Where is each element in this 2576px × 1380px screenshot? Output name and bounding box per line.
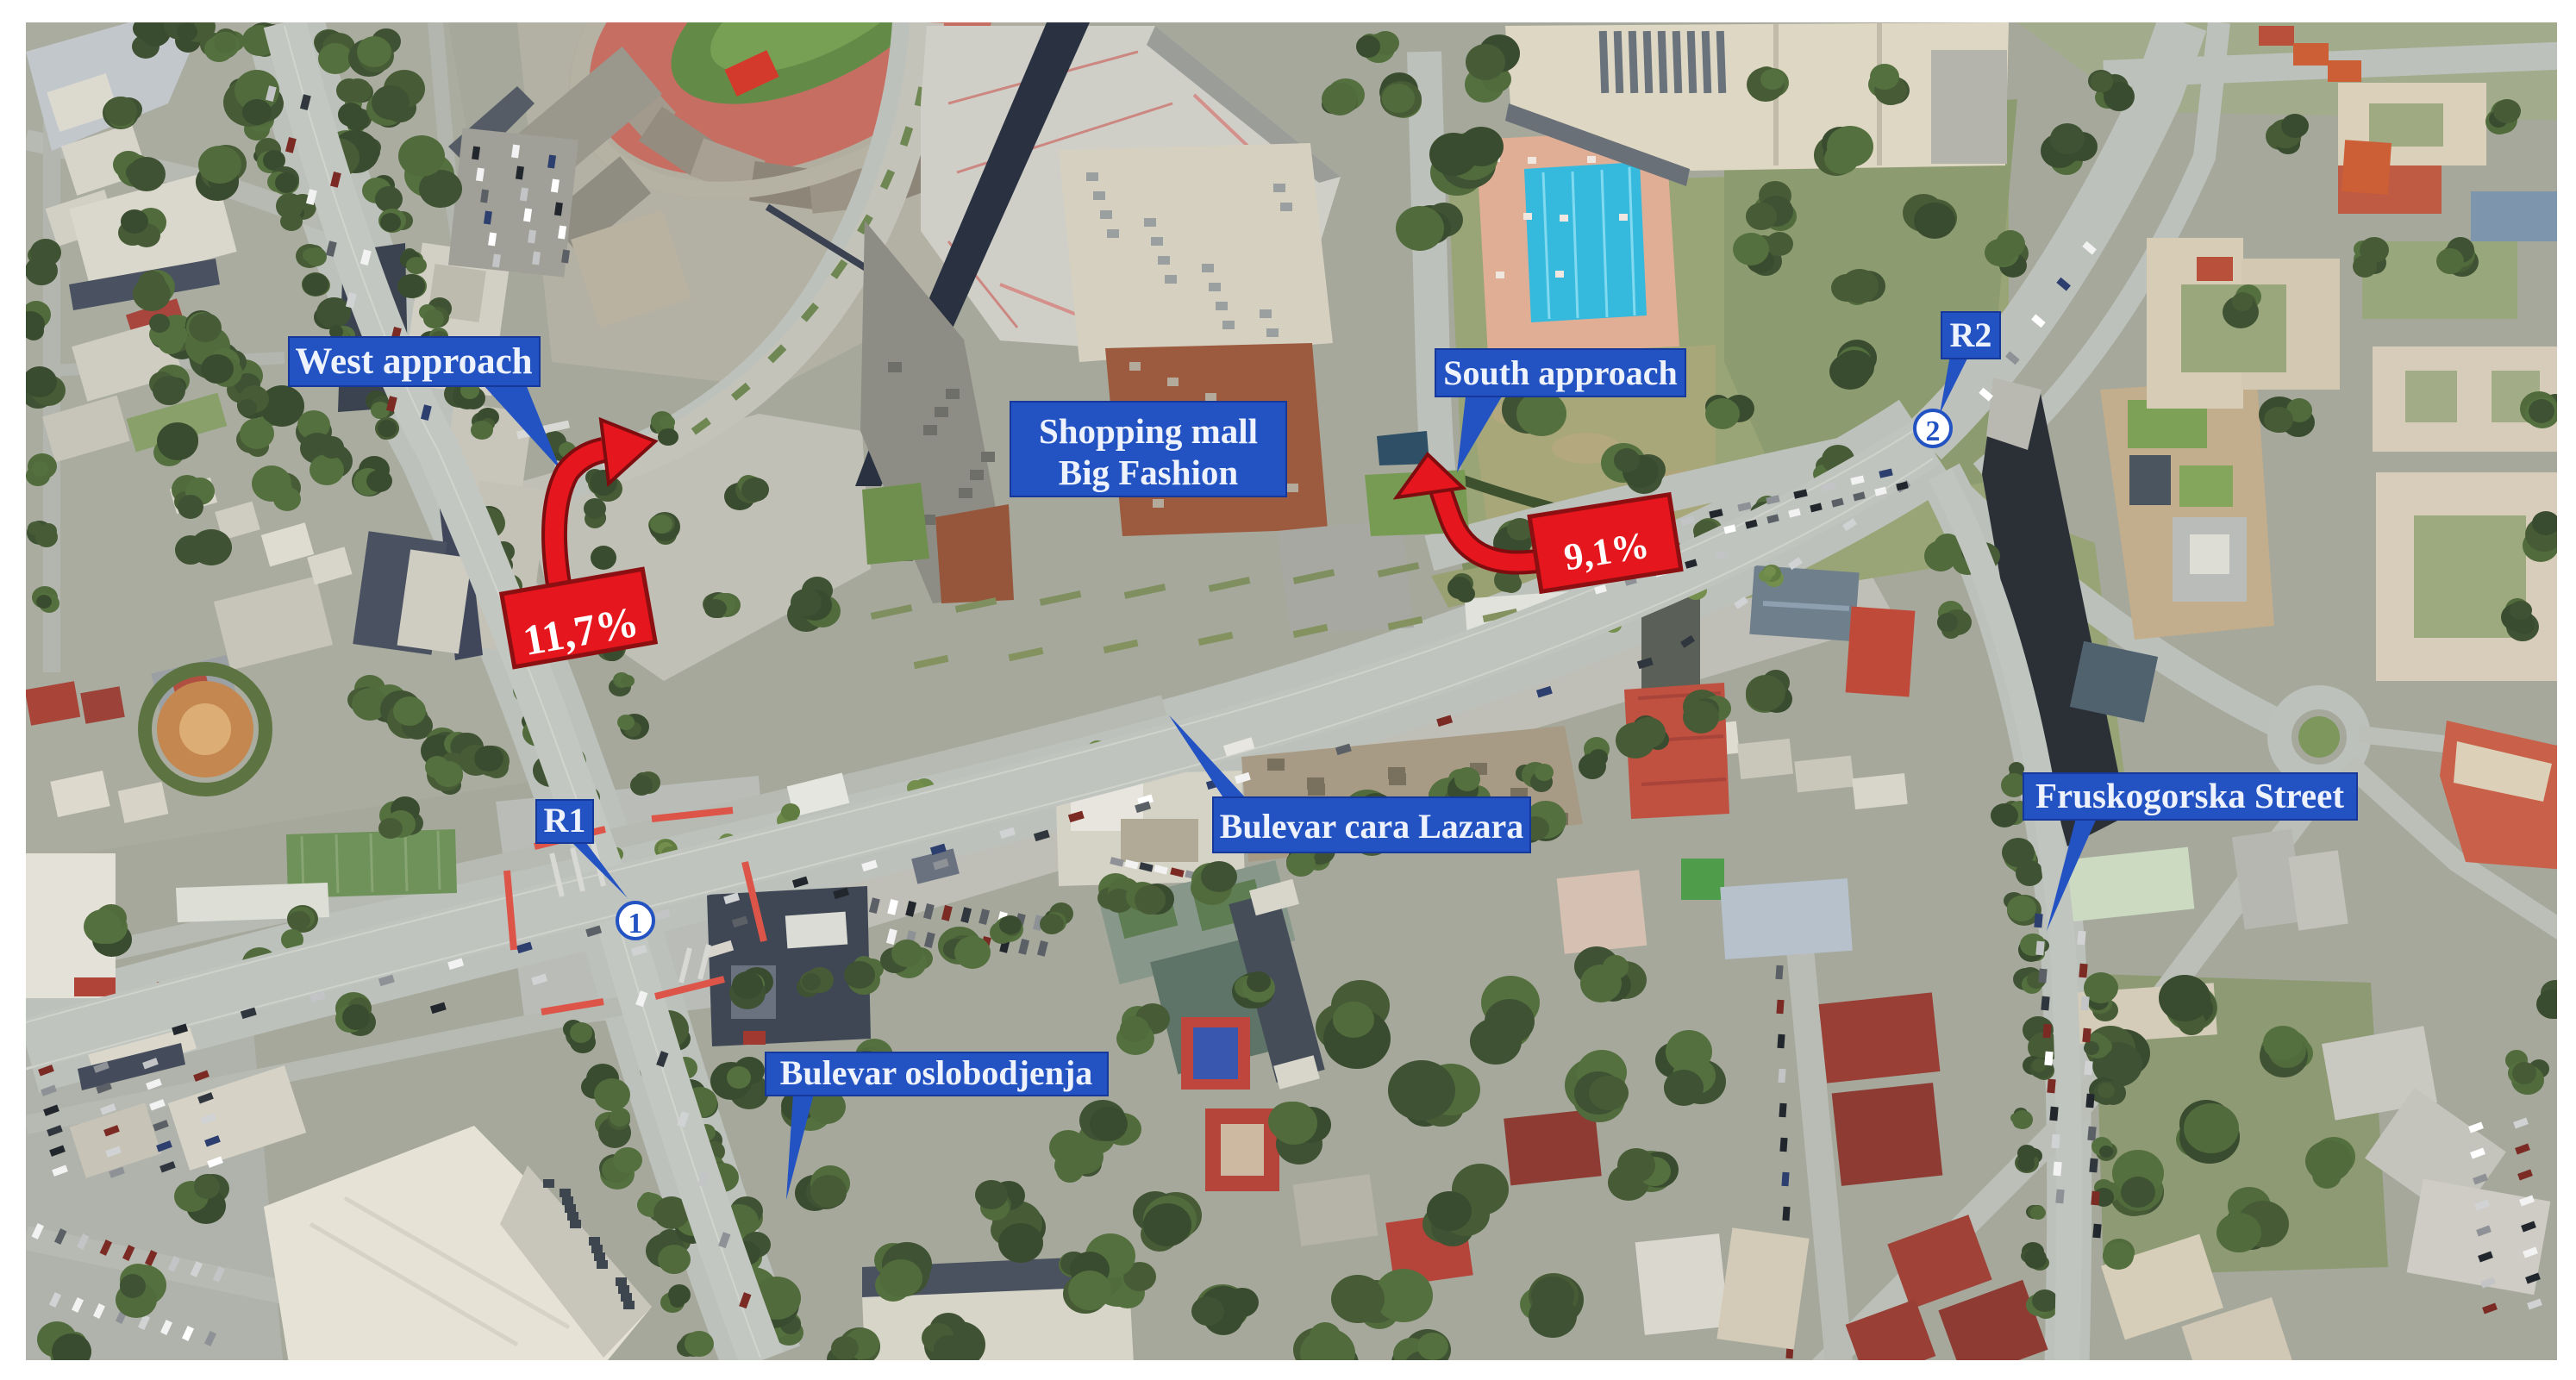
svg-text:West approach: West approach xyxy=(295,341,532,382)
svg-text:Bulevar oslobodjenja: Bulevar oslobodjenja xyxy=(780,1053,1093,1092)
svg-text:2: 2 xyxy=(1926,415,1941,447)
svg-text:South approach: South approach xyxy=(1443,353,1678,392)
svg-text:Bulevar cara Lazara: Bulevar cara Lazara xyxy=(1220,807,1524,846)
svg-text:1: 1 xyxy=(628,908,643,940)
svg-text:R2: R2 xyxy=(1950,315,1992,354)
svg-text:Shopping mall: Shopping mall xyxy=(1039,411,1258,451)
svg-text:Fruskogorska Street: Fruskogorska Street xyxy=(2035,776,2344,815)
svg-text:Big Fashion: Big Fashion xyxy=(1059,453,1239,492)
svg-text:R1: R1 xyxy=(544,801,586,840)
